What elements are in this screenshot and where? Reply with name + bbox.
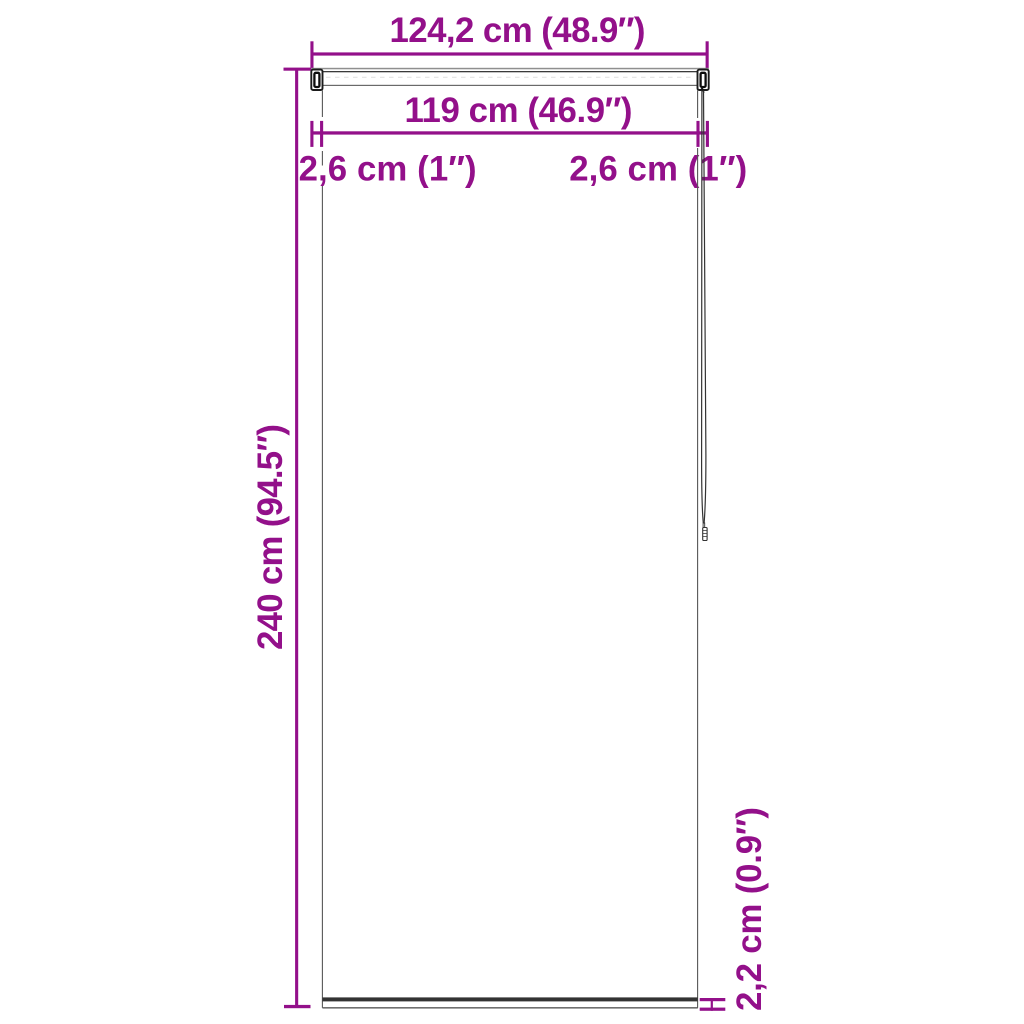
svg-text:2,2 cm (0.9″): 2,2 cm (0.9″): [730, 807, 769, 1011]
svg-text:240 cm (94.5″): 240 cm (94.5″): [251, 424, 290, 650]
svg-text:2,6 cm (1″): 2,6 cm (1″): [569, 149, 747, 188]
svg-text:124,2 cm (48.9″): 124,2 cm (48.9″): [390, 11, 646, 50]
svg-text:119 cm (46.9″): 119 cm (46.9″): [405, 91, 633, 130]
svg-text:2,6 cm (1″): 2,6 cm (1″): [299, 149, 477, 188]
